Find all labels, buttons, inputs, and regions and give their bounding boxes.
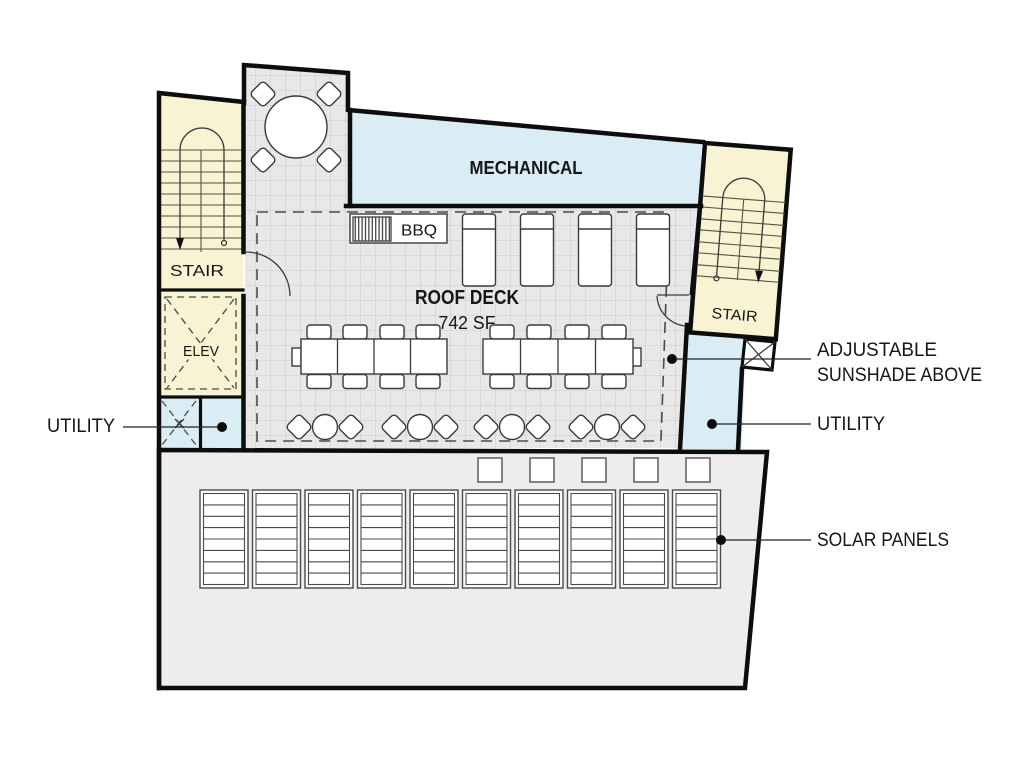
solar-panels-label: SOLAR PANELS [817,530,949,551]
sunshade-post [530,458,554,482]
leader-dot [716,535,726,545]
solar-panel [200,490,248,588]
leader-dot [217,422,227,432]
solar-panel [568,490,616,588]
sunshade-post [478,458,502,482]
sunshade-post [686,458,710,482]
sunshade-post [582,458,606,482]
sunshade-label-line1: ADJUSTABLE [817,340,937,361]
bbq-label: BBQ [401,223,437,240]
chair-group [286,414,365,441]
roof-deck-label: ROOF DECK [415,287,519,309]
sunshade-post [634,458,658,482]
utility-left-label: UTILITY [47,416,115,437]
utility-room-right [680,332,746,449]
lounge-chair [463,214,496,286]
stair-left-label: STAIR [170,263,224,280]
lounge-chair [521,214,554,286]
stair-right-label: STAIR [711,305,758,326]
solar-panel [410,490,458,588]
leader-dot [667,354,677,364]
utility-right-label: UTILITY [817,414,885,435]
chair-group [568,414,647,441]
solar-panel [358,490,406,588]
mechanical-label: MECHANICAL [470,158,583,178]
leader-dot [707,419,717,429]
solar-panel [673,490,721,588]
solar-panel [253,490,301,588]
bbq-grill [353,217,391,241]
sunshade-shaft [742,339,775,370]
chair-group [473,414,552,441]
stair-right-group: STAIR [690,143,791,339]
solar-panel [305,490,353,588]
lounge-chair [637,214,670,286]
elevator-label: ELEV [183,343,219,360]
bbq-counter: BBQ [350,214,447,243]
round-table [265,96,327,158]
solar-panel [515,490,563,588]
roof-plan-drawing: BBQ [0,0,1024,768]
solar-panel [620,490,668,588]
lounge-chair [579,214,612,286]
chair-group [381,414,460,441]
roof-deck-area-label: 742 SF [439,313,496,333]
floor-plan-canvas: BBQ [0,0,1024,768]
solar-panel [463,490,511,588]
sunshade-label-line2: SUNSHADE ABOVE [817,365,982,386]
